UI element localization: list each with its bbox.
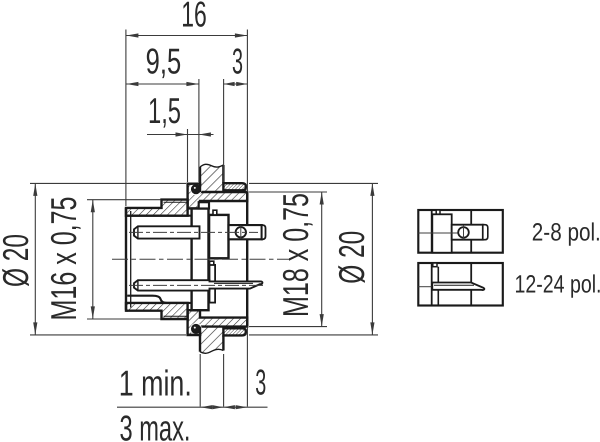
svg-text:9,5: 9,5 xyxy=(146,41,182,82)
svg-text:1,5: 1,5 xyxy=(148,90,181,131)
svg-text:Ø 20: Ø 20 xyxy=(0,234,36,287)
svg-text:3 max.: 3 max. xyxy=(120,408,191,442)
svg-text:3: 3 xyxy=(255,361,266,402)
svg-text:2-8 pol.: 2-8 pol. xyxy=(532,219,600,247)
svg-text:M16 x 0,75: M16 x 0,75 xyxy=(43,197,84,321)
svg-text:Ø 20: Ø 20 xyxy=(331,231,372,284)
svg-text:12-24 pol.: 12-24 pol. xyxy=(515,271,600,299)
svg-text:M18 x 0,75: M18 x 0,75 xyxy=(275,193,316,317)
svg-text:1 min.: 1 min. xyxy=(119,363,192,404)
svg-text:16: 16 xyxy=(181,0,207,34)
svg-text:3: 3 xyxy=(232,41,243,82)
